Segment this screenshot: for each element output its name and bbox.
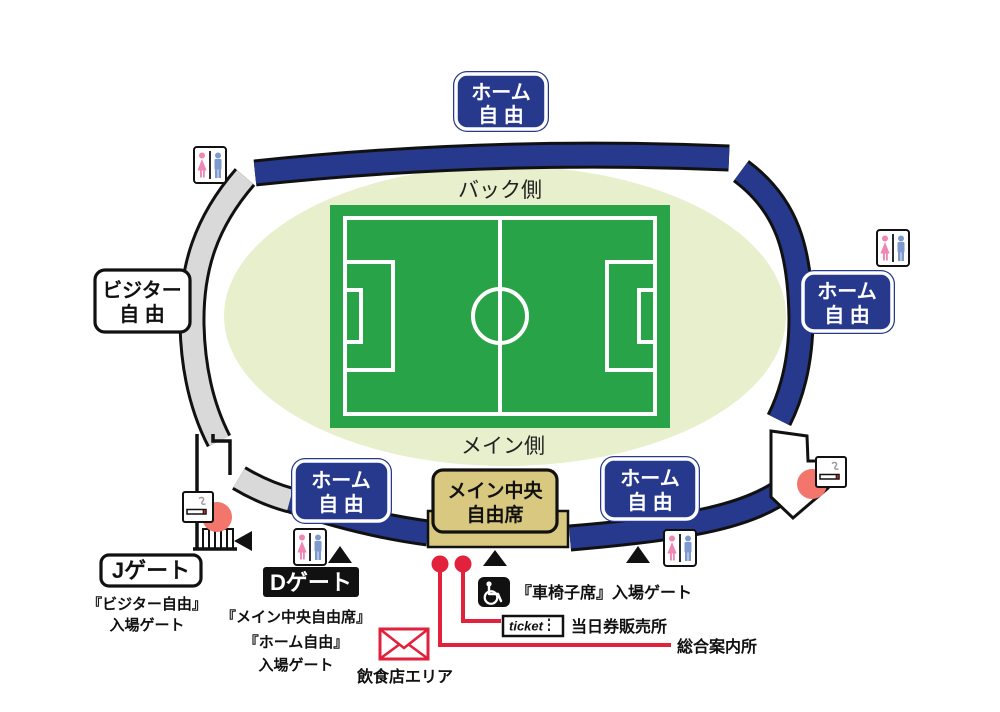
wheelchair-icon <box>478 577 510 607</box>
smoking-icon-right <box>816 457 846 487</box>
section-label-home-free-bottom-right: ホーム 自 由 <box>600 456 700 522</box>
ticket-icon-label: ticket <box>509 619 544 634</box>
section-label-line: ホーム <box>620 468 679 490</box>
section-label-line: 自 由 <box>478 103 524 127</box>
section-label-line: 自由席 <box>466 503 523 526</box>
stand-bottom-left-gray <box>239 478 290 500</box>
gate-desc: 『ビジター自由』 <box>87 595 207 613</box>
main-side-label: メイン側 <box>461 435 545 458</box>
section-label-line: 自 由 <box>627 490 673 514</box>
section-label-home-free-top: ホーム 自 由 <box>453 71 549 132</box>
section-label-main-center: メイン中央 自由席 <box>433 470 557 532</box>
toilet-icon-bottom-left <box>294 529 326 565</box>
envelope-icon <box>380 629 428 659</box>
gate-desc: 入場ゲート <box>258 656 333 674</box>
entrance-triangle-icon <box>626 546 650 563</box>
food-area-label: 飲食店エリア <box>356 667 453 686</box>
location-dot <box>455 556 472 573</box>
section-label-home-free-right: ホーム 自 由 <box>800 270 895 334</box>
section-label-line: 自 由 <box>119 302 165 326</box>
location-dot <box>432 556 449 573</box>
d-gate-label: Dゲート 『メイン中央自由席』 『ホーム自由』 入場ゲート <box>221 567 371 674</box>
gate-desc: 入場ゲート <box>109 616 184 634</box>
gate-name: Dゲート <box>270 570 352 595</box>
section-label-visitor-free: ビジター 自 由 <box>95 270 190 332</box>
entrance-triangle-icon <box>328 546 352 563</box>
section-label-line: 自 由 <box>318 492 364 516</box>
gate-desc: 『ホーム自由』 <box>244 633 349 651</box>
soccer-field <box>330 205 670 428</box>
section-label-home-free-bottom-left: ホーム 自 由 <box>291 458 392 524</box>
wheelchair-gate-label: 『車椅子席』入場ゲート <box>516 583 692 602</box>
back-side-label: バック側 <box>458 179 542 202</box>
stadium-seating-map: バック側 メイン側 <box>0 0 1000 712</box>
gate-name: Jゲート <box>112 558 190 583</box>
smoking-icon-j-gate <box>183 492 213 522</box>
toilet-icon-top-right <box>877 230 909 266</box>
section-label-line: ホーム <box>471 82 530 104</box>
ticket-icon: ticket <box>503 616 563 636</box>
toilet-icon-bottom-right <box>664 530 696 566</box>
info-desk-label: 総合案内所 <box>677 637 757 656</box>
section-label-line: ホーム <box>817 281 876 303</box>
toilet-icon-top-left <box>194 147 226 183</box>
stadium-map-canvas: バック側 メイン側 <box>0 0 1000 712</box>
section-label-line: ビジター <box>102 279 182 302</box>
section-label-line: ホーム <box>311 470 370 492</box>
ticket-office-label: 当日券販売所 <box>571 617 667 636</box>
gate-desc: 『メイン中央自由席』 <box>221 608 371 626</box>
section-label-line: メイン中央 <box>447 479 543 502</box>
j-gate-label: Jゲート 『ビジター自由』 入場ゲート <box>87 555 207 634</box>
section-label-line: 自 由 <box>824 303 870 327</box>
entrance-triangle-icon <box>483 550 507 566</box>
